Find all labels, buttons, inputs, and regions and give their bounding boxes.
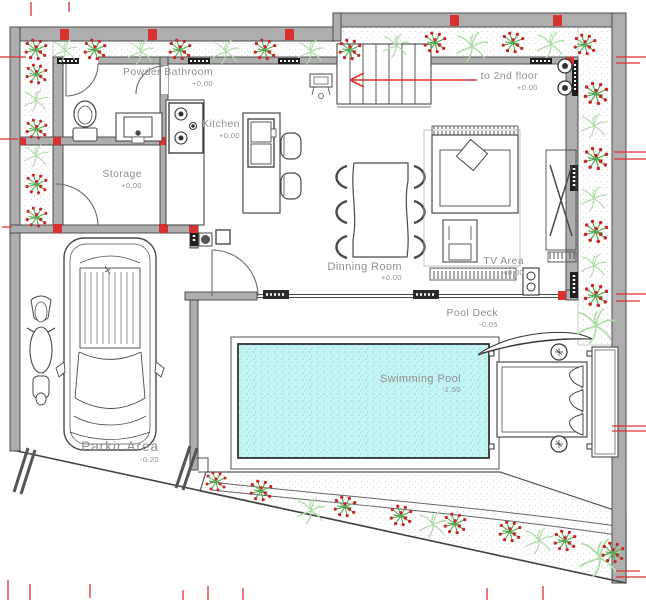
motorcycle xyxy=(27,296,55,405)
planter-box xyxy=(592,347,618,457)
room-elevation: +0.00 xyxy=(198,132,240,140)
room-name: Powder Bathroom xyxy=(118,67,213,79)
car xyxy=(56,238,164,450)
room-label-pool-deck: Pool Deck -0.05 xyxy=(441,308,498,329)
stair-side-table xyxy=(310,74,332,99)
room-label-tv-area: TV Area +0.00 xyxy=(481,256,524,277)
sliding-glass-wall xyxy=(257,295,566,298)
room-label-dinning-room: Dinning Room +0.00 xyxy=(326,261,402,282)
kitchen-island xyxy=(243,113,280,213)
room-label-powder-bathroom: Powder Bathroom +0.00 xyxy=(118,67,213,88)
room-label-parkir-area: Parkir Area -0.20 xyxy=(73,440,159,464)
room-elevation: -0.05 xyxy=(441,321,498,329)
room-name: Swimming Pool xyxy=(377,373,461,385)
room-elevation: -0.20 xyxy=(73,456,159,464)
floor-plan: Powder Bathroom +0.00 Kitchen +0.00 Stor… xyxy=(0,0,646,600)
floor-plan-canvas xyxy=(0,0,646,600)
swimming-pool-water xyxy=(231,337,499,469)
room-elevation: +0.00 xyxy=(477,84,538,92)
room-elevation: -1.50 xyxy=(377,386,461,394)
room-name: Dinning Room xyxy=(326,261,402,273)
room-elevation: +0.00 xyxy=(481,269,524,277)
bathroom-sink xyxy=(116,113,162,143)
room-label-to-2nd-floor: to 2nd floor +0.00 xyxy=(477,71,538,92)
room-label-storage: Storage +0.00 xyxy=(95,169,142,190)
palm-leaf xyxy=(478,332,592,355)
room-name: Pool Deck xyxy=(441,308,498,320)
dining-table xyxy=(353,163,408,257)
room-name: Kitchen xyxy=(198,119,240,131)
speaker-tower xyxy=(523,268,539,295)
room-name: to 2nd floor xyxy=(477,71,538,83)
room-elevation: +0.00 xyxy=(95,182,142,190)
room-name: Storage xyxy=(95,169,142,181)
room-name: Parkir Area xyxy=(73,440,159,455)
room-elevation: +0.00 xyxy=(326,274,402,282)
bar-stools xyxy=(281,133,301,199)
room-name: TV Area xyxy=(481,256,524,268)
toilet xyxy=(73,101,97,141)
floor-drain-boxes xyxy=(199,230,230,246)
daybed xyxy=(497,362,587,437)
room-label-kitchen: Kitchen +0.00 xyxy=(198,119,240,140)
sofa xyxy=(432,126,518,262)
room-label-swimming-pool: Swimming Pool -1.50 xyxy=(377,373,461,394)
room-elevation: +0.00 xyxy=(118,80,213,88)
pool-deck-edge xyxy=(196,458,500,472)
